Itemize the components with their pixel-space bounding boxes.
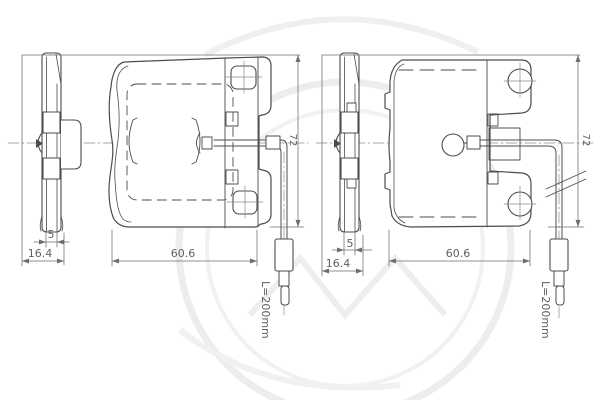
right-side-view-lower-tab bbox=[347, 179, 356, 188]
left-side-view-backplate bbox=[42, 53, 61, 232]
right-friction-thickness-label: 5 bbox=[347, 237, 354, 250]
right-wire-break-marks bbox=[546, 171, 586, 197]
right-sensor-body bbox=[550, 239, 568, 271]
right-sensor-length-label: L=200mm bbox=[539, 281, 552, 339]
left-sensor-body bbox=[275, 239, 293, 271]
watermark-top-arc bbox=[205, 19, 478, 55]
right-sensor-neck bbox=[554, 271, 564, 286]
left-pad-width-label: 60.6 bbox=[171, 247, 196, 260]
right-pad-center-abutment bbox=[489, 128, 520, 160]
left-friction-thickness-label: 5 bbox=[48, 228, 55, 241]
right-total-thickness-label: 16.4 bbox=[326, 257, 351, 270]
left-sensor-neck bbox=[279, 271, 289, 286]
watermark-bottom-arc bbox=[180, 330, 400, 388]
left-side-view-protrusion bbox=[61, 120, 81, 169]
left-side-view-upper-clip bbox=[43, 112, 60, 133]
left-sensor-length-label: L=200mm bbox=[259, 281, 272, 339]
right-side-view-lower-clip bbox=[341, 158, 358, 179]
left-sensor-tip bbox=[281, 286, 289, 305]
left-pad-height-label: 72 bbox=[287, 134, 298, 147]
left-pad-upper-ear-hole bbox=[231, 66, 256, 89]
right-side-view-upper-tab bbox=[347, 103, 356, 112]
right-side-view-backplate bbox=[340, 53, 359, 232]
technical-drawing-canvas: 5 16.4 60.6 72 L=200mm bbox=[0, 0, 600, 400]
right-side-view-upper-clip bbox=[341, 112, 358, 133]
left-pad-front-view bbox=[109, 57, 271, 228]
left-sensor-crimp bbox=[266, 136, 280, 149]
right-pad-width-label: 60.6 bbox=[446, 247, 471, 260]
right-sensor-tip bbox=[556, 286, 564, 305]
left-total-thickness-label: 16.4 bbox=[28, 247, 53, 260]
left-side-view-lower-clip bbox=[43, 158, 60, 179]
right-pad-height-label: 72 bbox=[580, 134, 591, 147]
right-pad-drawing: 5 16.4 60.6 72 L=200mm bbox=[316, 53, 594, 339]
right-pad-sensor-hole bbox=[442, 134, 464, 156]
left-side-view bbox=[36, 53, 81, 232]
drawing-page: 5 16.4 60.6 72 L=200mm bbox=[0, 0, 600, 400]
right-pad-front-view bbox=[385, 60, 536, 227]
right-sensor-crimp bbox=[467, 136, 480, 149]
left-pad-drawing: 5 16.4 60.6 72 L=200mm bbox=[8, 53, 308, 339]
